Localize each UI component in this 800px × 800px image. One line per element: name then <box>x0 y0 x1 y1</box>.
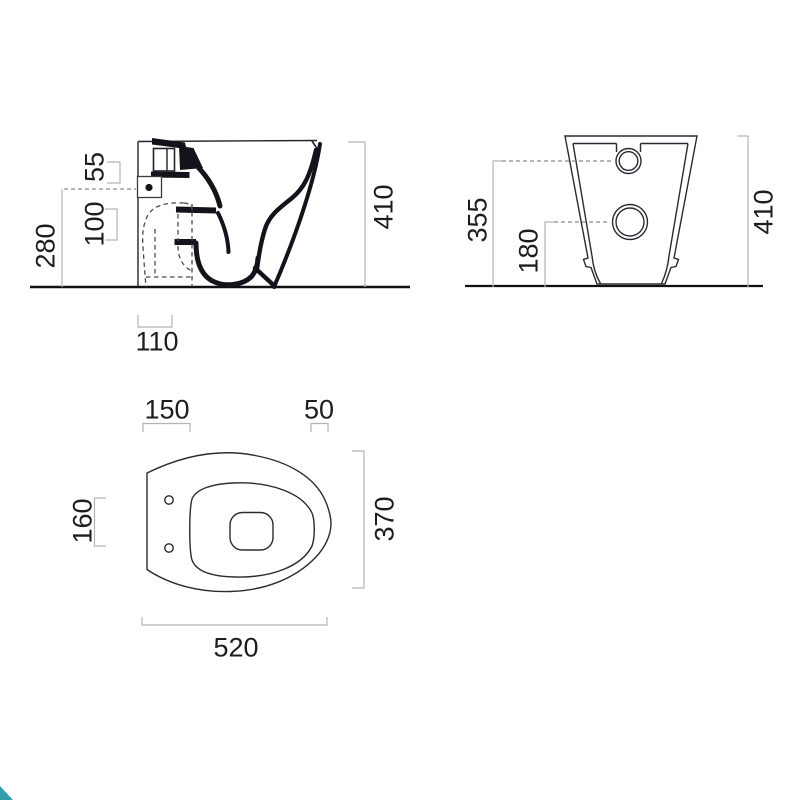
dim-520-bracket <box>142 617 327 625</box>
corner-accent <box>0 786 13 800</box>
dim-label-plan-50: 50 <box>304 397 334 424</box>
outlet-hole <box>613 205 648 240</box>
dim-180-line <box>545 222 554 287</box>
rim-inner-outline <box>190 483 315 577</box>
dim-370-bracket <box>352 451 364 588</box>
dim-label-front-180: 180 <box>516 228 543 273</box>
front-view <box>465 136 763 286</box>
dim-label-side-280: 280 <box>33 223 60 268</box>
dim-label-plan-370: 370 <box>372 496 399 541</box>
fixing-hole-top <box>165 496 173 504</box>
dim-label-front-410: 410 <box>751 189 778 234</box>
dim-label-side-55: 55 <box>82 152 109 182</box>
dim-label-side-100: 100 <box>82 201 109 246</box>
water-area <box>230 513 273 551</box>
dim-110-bracket <box>138 315 172 327</box>
fixing-hole-bottom <box>165 544 173 552</box>
dim-410-front-line <box>737 136 748 287</box>
plan-view <box>147 453 331 592</box>
dimension-lines <box>62 136 748 625</box>
dim-label-plan-520: 520 <box>213 635 258 662</box>
dim-50-bracket <box>311 424 328 433</box>
drawing-sheet: 55 280 100 410 110 355 180 410 150 50 16… <box>0 0 800 800</box>
dim-355-line <box>493 161 502 287</box>
technical-drawing <box>0 0 800 800</box>
dim-label-side-110: 110 <box>135 329 178 356</box>
dim-label-plan-160: 160 <box>70 498 97 543</box>
fixing-point-dot <box>145 184 152 191</box>
dim-label-plan-150: 150 <box>144 397 189 424</box>
dim-150-bracket <box>143 424 190 433</box>
dim-label-side-410: 410 <box>371 184 398 229</box>
dim-410-side-line <box>348 142 365 287</box>
seat-outer-outline <box>147 453 331 592</box>
dim-label-front-355: 355 <box>465 197 492 242</box>
